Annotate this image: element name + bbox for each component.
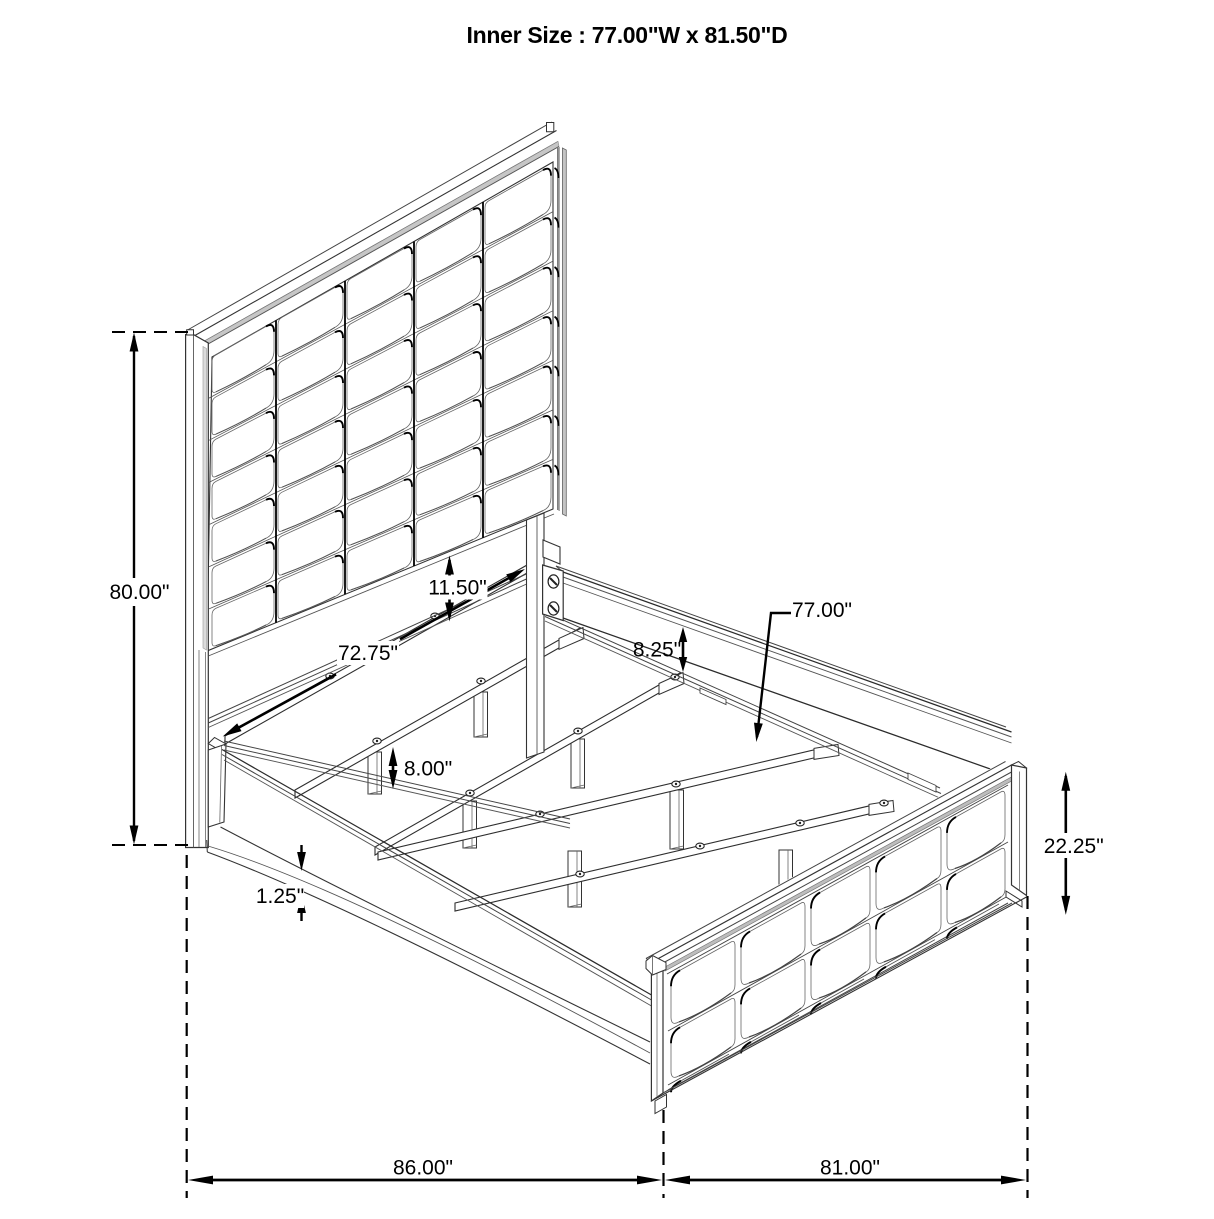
svg-text:11.50": 11.50"	[428, 577, 486, 600]
svg-text:8.25": 8.25"	[633, 639, 681, 662]
svg-text:77.00": 77.00"	[792, 599, 852, 622]
svg-text:86.00": 86.00"	[393, 1157, 453, 1180]
svg-text:1.25": 1.25"	[256, 885, 304, 908]
svg-text:Inner Size : 77.00"W x 81.50"D: Inner Size : 77.00"W x 81.50"D	[467, 22, 788, 48]
svg-text:80.00": 80.00"	[109, 581, 169, 604]
svg-text:72.75": 72.75"	[338, 642, 398, 665]
svg-text:22.25": 22.25"	[1044, 835, 1104, 858]
svg-text:81.00": 81.00"	[820, 1157, 880, 1180]
svg-text:8.00": 8.00"	[404, 758, 452, 781]
